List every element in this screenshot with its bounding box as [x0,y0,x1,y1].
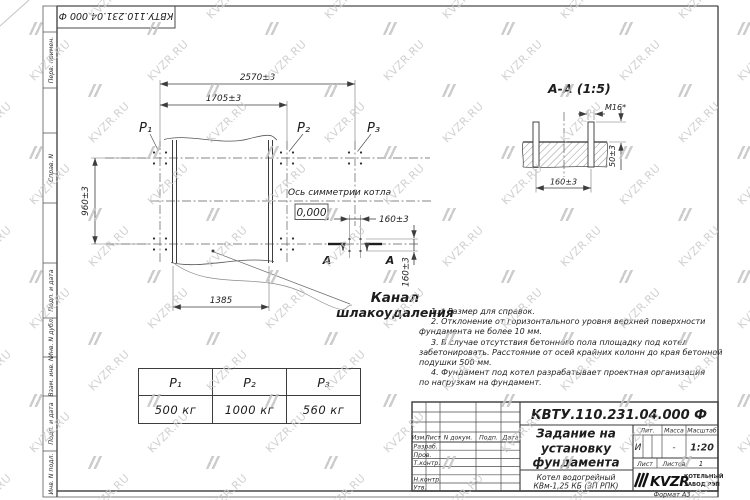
note-line: 4. Фундамент под котел разрабатывает про… [419,368,719,378]
anchor-bolt-left [533,122,539,167]
side-label: Инв. N подл. [48,454,55,495]
tb-col-sign: Подп. [479,435,498,442]
note-line: забетонировать. Расстояние от осей крайн… [419,348,719,358]
tb-product: Котел водогрейный КВм-1,25 КБ (ЗП РПК) [534,473,619,491]
doc-number-stamp: КВТУ.110.231.04.000 Ф [57,6,175,28]
drawing-linework: Перв. примен. Справ. N Подп. и дата Инв.… [0,0,750,500]
tb-doc-number: КВТУ.110.231.04.000 Ф [531,408,707,423]
tb-props: Лит. Масса Масштаб И - 1:20 Лист Листов … [635,427,717,468]
loads-header-p2: P₂ [213,369,287,396]
break-line-bottom [171,260,274,265]
tb-product-line: КВм-1,25 КБ (ЗП РПК) [534,482,619,491]
tb-row-label: Разраб. [414,443,438,451]
dim-sec-height: 50±3 [608,145,617,167]
tb-col-date: Дата [501,435,518,442]
tb-column-headers: Изм. Лист N докум. Подп. Дата [412,435,519,442]
channel-callout-line2: шлакоудаления [322,306,468,320]
channel-callout: Канал шлакоудаления [322,291,468,320]
tb-row-label: Т.контр. [414,460,441,467]
tb-row-label: Пров. [414,452,432,459]
loads-header-p3: P₃ [287,369,361,396]
side-label: Взам. инв. N [48,356,55,397]
side-label: Инв. N дубл. [47,317,55,358]
anchor-bolt-right [588,122,594,167]
format-label: Формат А3 [653,491,690,499]
channel-callout-line1: Канал [322,291,468,306]
anchor-bolt-dots [153,151,362,252]
tb-signature-rows: Разраб. Пров. Т.контр. Н.контр. Утв. [414,443,442,492]
dim-pair-v: 160±3 [402,257,412,287]
break-line-top [164,135,277,141]
side-label: Перв. примен. [48,37,55,83]
note-line: 3. В случае отсутствия бетонного пола пл… [419,338,719,348]
side-label: Подп. и дата [48,269,55,311]
tb-mass-value: - [672,443,675,453]
loads-value-p2: 1000 кг [213,396,287,424]
side-label: Подп. и дата [48,402,55,444]
left-column-labels: Перв. примен. Справ. N Подп. и дата Инв.… [47,37,55,495]
title-block: КВТУ.110.231.04.000 Ф Задание на установ… [412,402,724,492]
side-label: Справ. N [48,153,55,182]
dim-bolt-thread: M16* [605,103,626,112]
section-view: А-А (1:5) [522,81,626,193]
axis-of-symmetry-label: Ось симметрии котла [288,188,391,198]
tb-sheet-label: Лист [636,461,653,468]
scan-corner-artifact [0,0,29,26]
note-line: по нагрузкам на фундамент. [419,378,719,388]
tb-title: Задание на установку фундамента [532,427,619,470]
load-label-p1: P₁ [139,121,152,136]
level-mark: 0,000 [295,204,328,220]
section-title: А-А (1:5) [547,81,611,96]
tb-col-doc: N докум. [444,435,473,442]
loads-table-header-row: P₁ P₂ P₃ [139,369,361,396]
note-line: фундамента не более 10 мм. [419,327,719,337]
tb-lit-label: Лит. [639,428,654,435]
dim-channel: 1385 [210,296,233,306]
loads-value-p1: 500 кг [139,396,213,424]
tb-col-list: Лист [424,435,441,442]
dim-pair-h: 160±3 [379,215,409,225]
section-letter-left: А [322,254,332,267]
dim-width-total: 2570±3 [240,73,276,83]
loads-value-p3: 560 кг [287,396,361,424]
company-logo: KVZR КОТЕЛЬНЫЙ ЗАВОД РЭП [635,472,724,490]
tb-scale-value: 1:20 [690,443,714,454]
kvzr-stripes-logo-icon [635,473,648,487]
tb-title-line: установку [541,442,612,456]
drawing-sheet: Перв. примен. Справ. N Подп. и дата Инв.… [0,0,750,500]
section-letter-right: А [385,254,395,267]
doc-number-stamp-text: КВТУ.110.231.04.000 Ф [59,10,174,21]
load-label-p2: P₂ [297,121,310,136]
tb-title-line: Задание на [536,427,616,441]
tb-row-label: Н.контр. [414,477,442,484]
load-label-p3: P₃ [367,121,380,136]
dim-width-left: 1705±3 [206,94,242,104]
level-value: 0,000 [296,207,326,219]
note-line: подушки 500 мм. [419,358,719,368]
tb-col-izm: Изм. [412,435,427,442]
tb-scale-label: Масштаб [687,427,717,435]
company-tagline-1: КОТЕЛЬНЫЙ [684,472,724,480]
channel-walls [173,140,273,263]
dim-sec-spacing: 160±3 [550,178,577,187]
tb-sheets-label: Листов [661,461,685,468]
section-cut-marks: А А [322,244,395,267]
loads-table: P₁ P₂ P₃ 500 кг 1000 кг 560 кг [138,368,361,424]
tb-sheets-value: 1 [699,460,703,468]
tb-row-label: Утв. [414,485,427,492]
company-tagline-2: ЗАВОД РЭП [684,482,720,488]
tb-lit-value: И [635,443,642,453]
loads-table-value-row: 500 кг 1000 кг 560 кг [139,396,361,424]
tb-mass-label: Масса [664,428,684,435]
dim-height: 960±3 [81,186,91,216]
tb-title-line: фундамента [532,456,619,470]
loads-header-p1: P₁ [139,369,213,396]
